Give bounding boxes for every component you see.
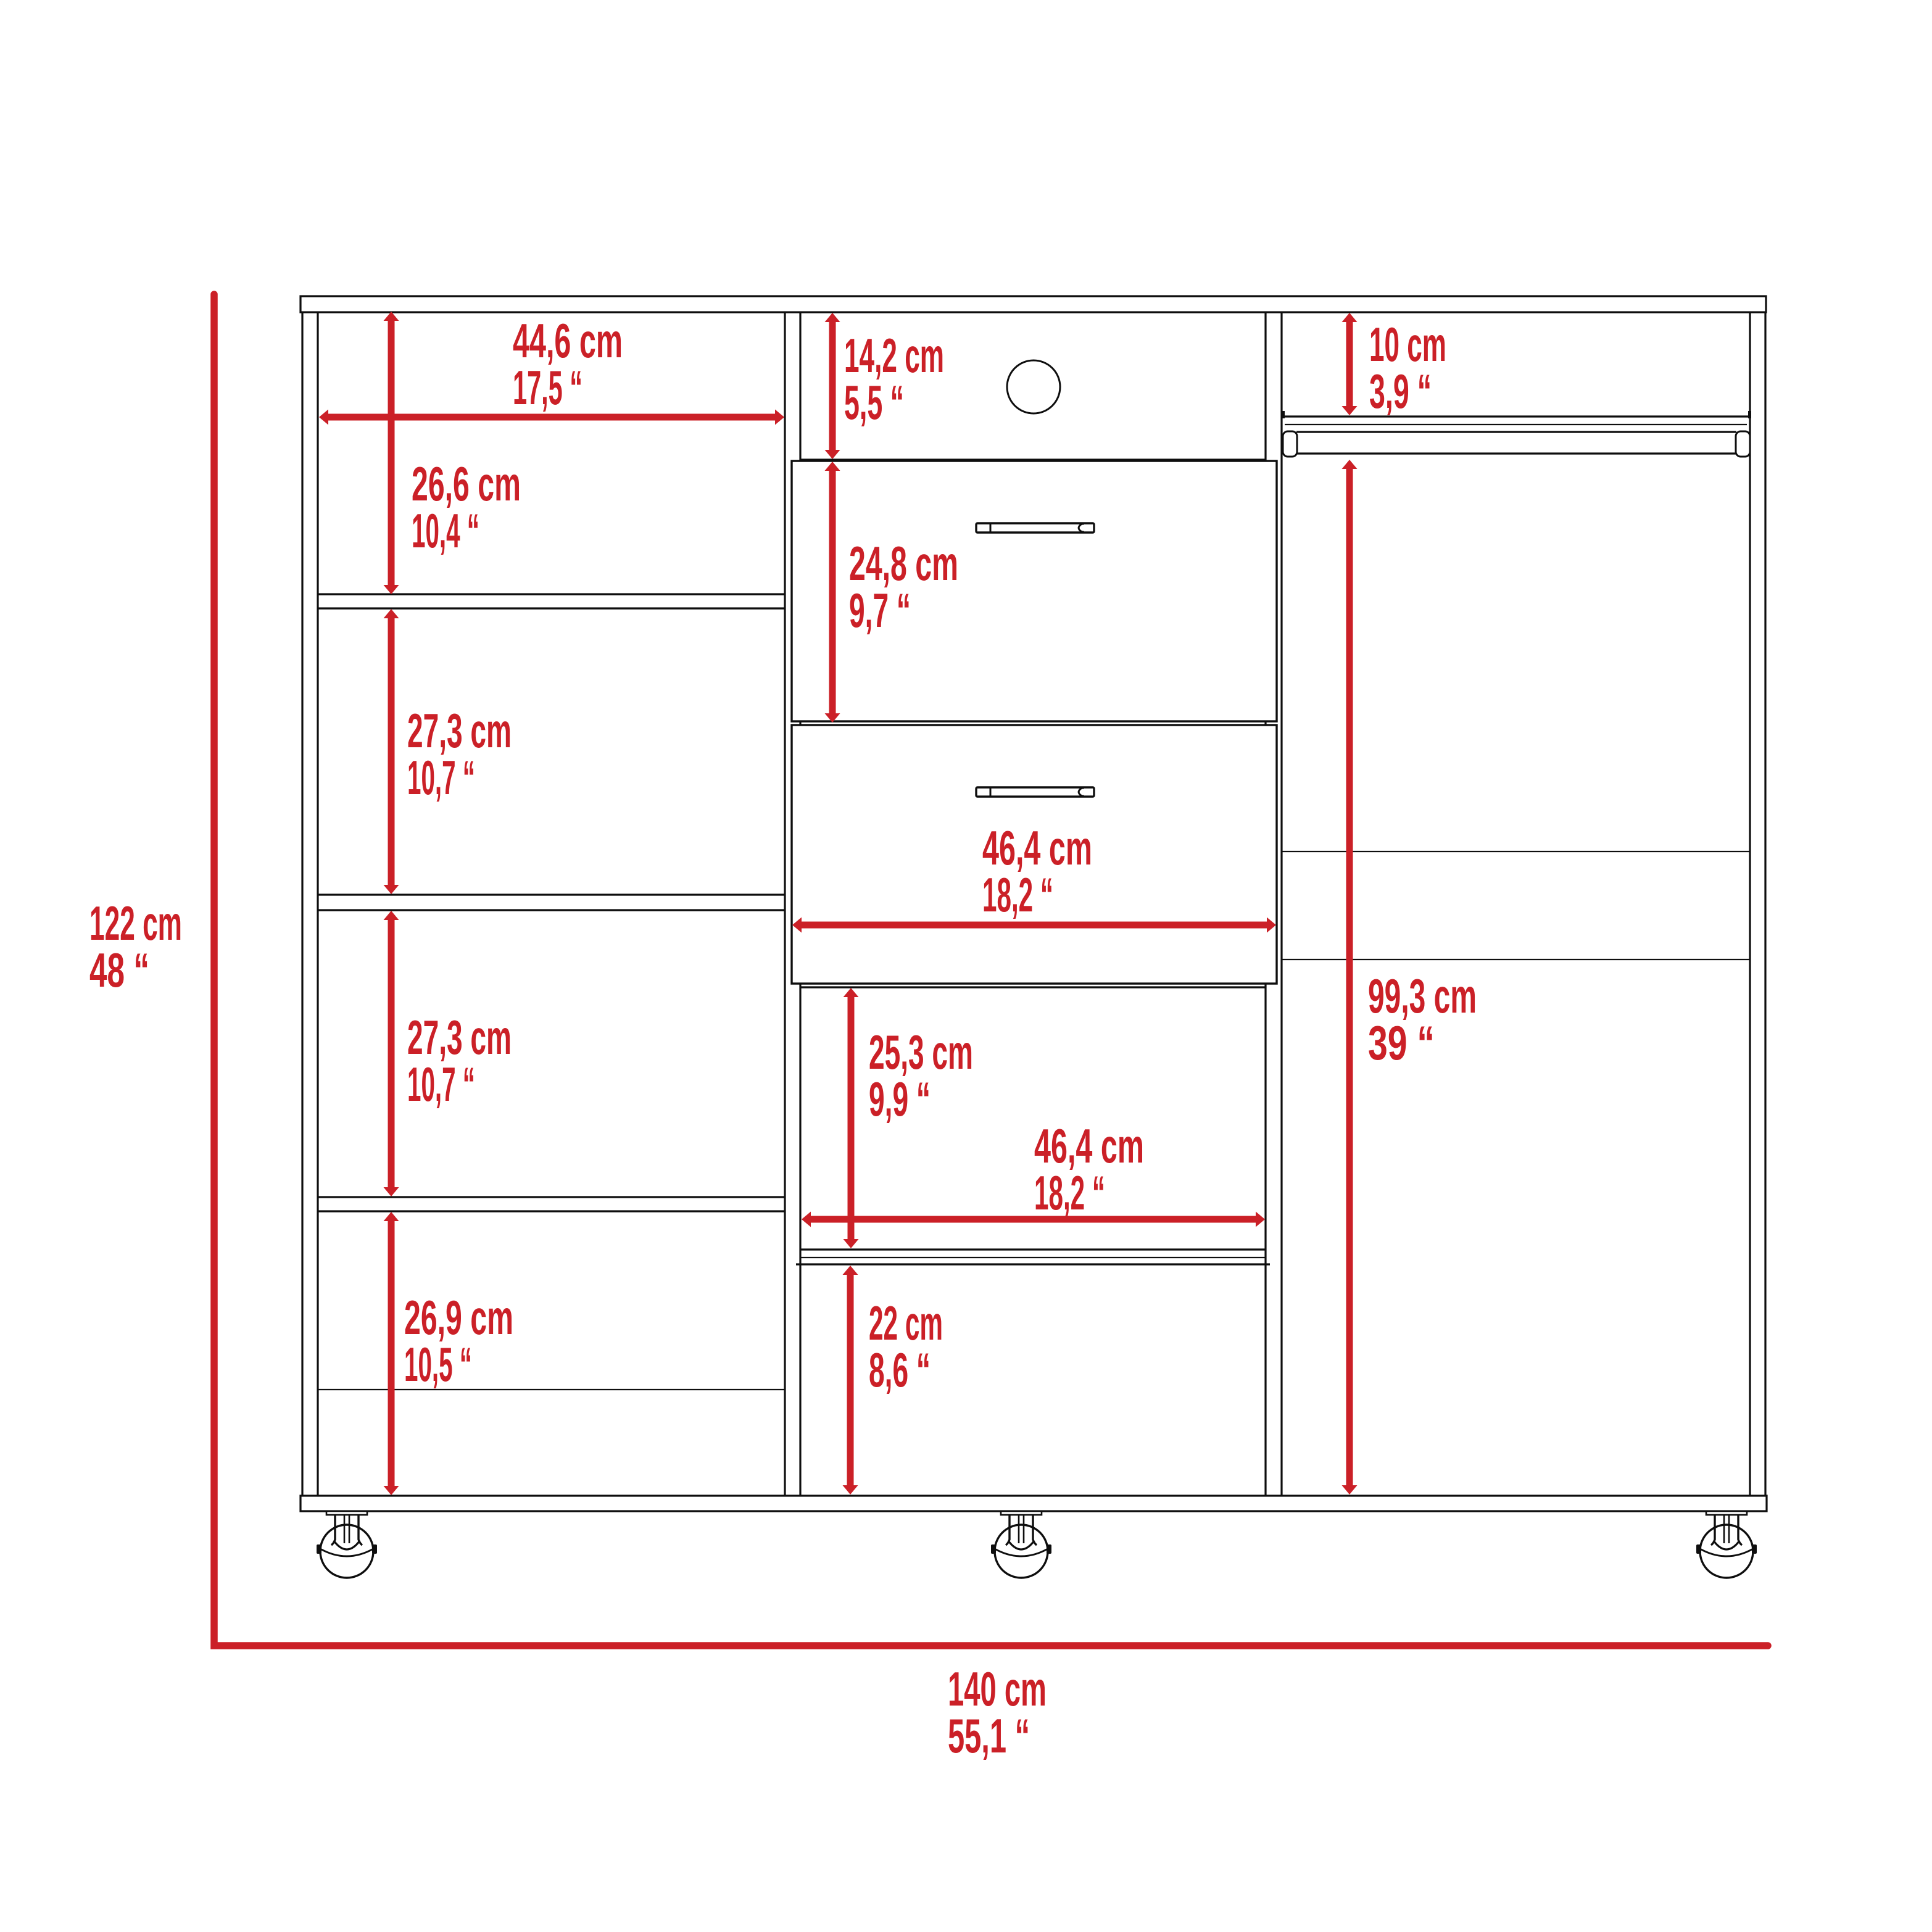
svg-text:48 “: 48 “ (89, 943, 149, 997)
svg-text:10,4 “: 10,4 “ (412, 504, 479, 558)
svg-text:26,9 cm: 26,9 cm (404, 1290, 513, 1345)
svg-text:55,1 “: 55,1 “ (948, 1709, 1030, 1763)
svg-text:10,7 “: 10,7 “ (407, 750, 475, 805)
svg-text:9,7 “: 9,7 “ (849, 583, 911, 637)
svg-text:46,4 cm: 46,4 cm (1034, 1119, 1144, 1173)
svg-text:3,9 “: 3,9 “ (1369, 364, 1432, 418)
svg-text:44,6 cm: 44,6 cm (513, 313, 623, 368)
svg-text:22 cm: 22 cm (869, 1296, 943, 1350)
svg-text:39 “: 39 “ (1368, 1016, 1435, 1070)
svg-text:17,5 “: 17,5 “ (513, 360, 583, 415)
svg-text:140 cm: 140 cm (948, 1662, 1047, 1716)
svg-text:26,6 cm: 26,6 cm (412, 457, 521, 511)
svg-text:8,6 “: 8,6 “ (869, 1343, 931, 1397)
svg-text:18,2 “: 18,2 “ (982, 868, 1053, 922)
svg-text:27,3 cm: 27,3 cm (407, 1010, 512, 1064)
svg-text:5,5 “: 5,5 “ (844, 375, 904, 429)
svg-text:10 cm: 10 cm (1369, 317, 1446, 371)
svg-text:27,3 cm: 27,3 cm (407, 703, 512, 758)
svg-text:46,4 cm: 46,4 cm (982, 821, 1092, 875)
svg-text:14,2 cm: 14,2 cm (844, 328, 944, 383)
svg-text:9,9 “: 9,9 “ (869, 1072, 931, 1126)
svg-text:99,3 cm: 99,3 cm (1368, 969, 1477, 1023)
svg-text:122 cm: 122 cm (89, 896, 182, 950)
svg-text:10,7 “: 10,7 “ (407, 1057, 475, 1111)
svg-text:25,3 cm: 25,3 cm (869, 1025, 973, 1079)
svg-text:24,8 cm: 24,8 cm (849, 536, 958, 591)
svg-text:18,2 “: 18,2 “ (1034, 1166, 1105, 1220)
svg-text:10,5 “: 10,5 “ (404, 1337, 472, 1391)
